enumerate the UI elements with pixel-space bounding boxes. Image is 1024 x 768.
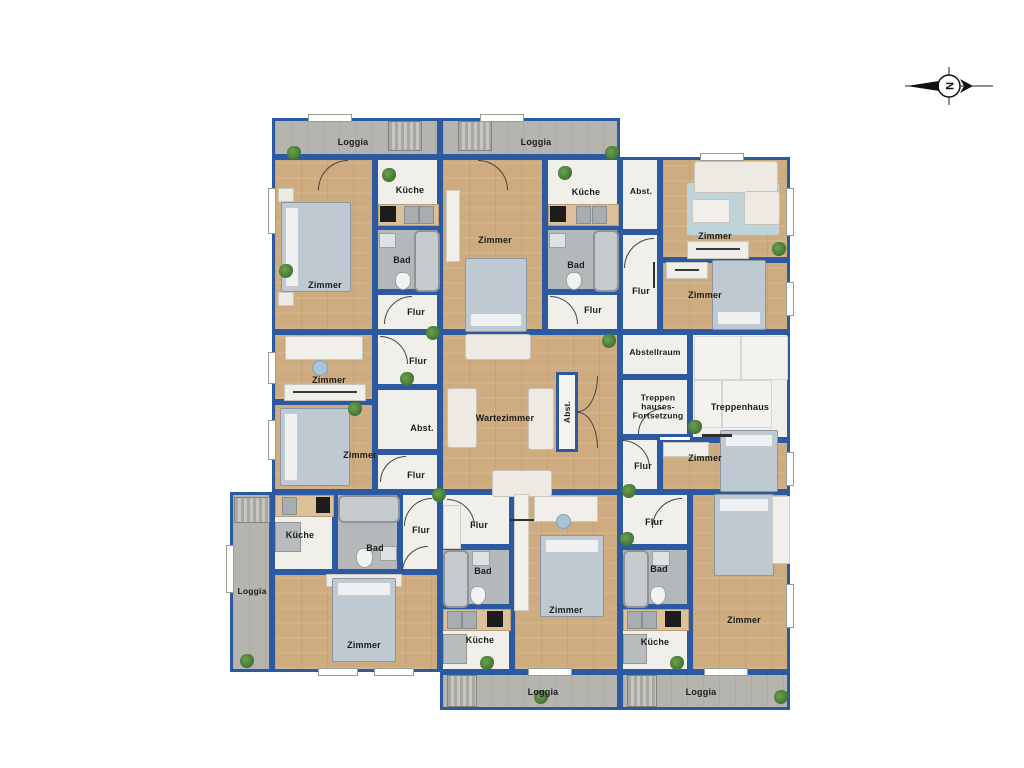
room-zimmer-c2: Zimmer xyxy=(660,260,790,332)
room-label: Zimmer xyxy=(727,615,761,625)
room-label: Zimmer xyxy=(688,453,722,463)
room-flur-mr: Flur xyxy=(620,437,660,492)
room-zimmer-mr: Zimmer xyxy=(660,440,790,492)
room-label: Abstellraum xyxy=(629,347,680,357)
room-label: Bad xyxy=(650,564,668,574)
room-label: Loggia xyxy=(686,687,717,697)
room-flur-a: Flur xyxy=(375,292,440,332)
room-zimmer-c1: Zimmer xyxy=(660,157,790,260)
room-label: Treppen hauses- Fortsetzung xyxy=(633,394,684,421)
room-kueche-e: Küche xyxy=(272,492,335,572)
room-label: Abst. xyxy=(410,423,434,433)
label-line: Fortsetzung xyxy=(633,412,684,421)
room-label: Wartezimmer xyxy=(476,413,534,423)
closet-abst: Abst. xyxy=(556,372,578,452)
compass-north-icon: N xyxy=(903,60,995,112)
compass-letter: N xyxy=(943,82,955,90)
room-label: Treppenhaus xyxy=(711,402,769,412)
room-flur-d1: Flur xyxy=(375,332,440,387)
room-bad-f: Bad xyxy=(440,547,512,607)
room-zimmer-b: Zimmer xyxy=(440,157,545,332)
room-loggia-left: Loggia xyxy=(230,492,272,672)
room-label: Küche xyxy=(396,185,425,195)
room-treppenhaus: Treppenhaus xyxy=(690,332,790,440)
room-kueche-a: Küche xyxy=(375,157,440,227)
room-label: Loggia xyxy=(338,137,369,147)
room-label: Flur xyxy=(407,307,425,317)
room-label: Flur xyxy=(470,520,488,530)
room-label: Loggia xyxy=(521,137,552,147)
room-label: Flur xyxy=(409,356,427,366)
room-label: Flur xyxy=(645,517,663,527)
room-label: Zimmer xyxy=(347,640,381,650)
room-zimmer-g: Zimmer xyxy=(690,492,790,672)
room-label: Abst. xyxy=(630,186,652,196)
room-loggia-f: Loggia xyxy=(440,672,620,710)
room-loggia-top-b: Loggia xyxy=(440,118,620,157)
floor-plan: Loggia Loggia Zimmer Küche Bad Flur Zimm… xyxy=(0,0,1024,768)
room-abst-c: Abst. xyxy=(620,157,660,232)
room-label: Flur xyxy=(407,470,425,480)
room-wartezimmer: Wartezimmer xyxy=(440,332,620,492)
room-flur-d2: Flur xyxy=(375,452,440,492)
room-abstellraum: Abstellraum xyxy=(620,332,690,377)
room-bad-g: Bad xyxy=(620,547,690,607)
room-label: Zimmer xyxy=(478,235,512,245)
room-label: Flur xyxy=(584,305,602,315)
room-label: Zimmer xyxy=(688,290,722,300)
room-loggia-top-a: Loggia xyxy=(272,118,440,157)
room-bad-e: Bad xyxy=(335,492,400,572)
room-flur-f: Flur xyxy=(440,492,512,547)
room-label: Loggia xyxy=(237,586,266,596)
room-treppenhaus-fortsetzung: Treppen hauses- Fortsetzung xyxy=(620,377,690,437)
room-zimmer-e: Zimmer xyxy=(272,572,440,672)
room-label: Zimmer xyxy=(549,605,583,615)
room-label: Flur xyxy=(412,525,430,535)
room-label: Bad xyxy=(366,543,384,553)
room-flur-g: Flur xyxy=(620,492,690,547)
room-abst-d: Abst. xyxy=(375,387,440,452)
room-flur-b: Flur xyxy=(545,292,620,332)
room-zimmer-a: Zimmer xyxy=(272,157,375,332)
room-kueche-g: Küche xyxy=(620,607,690,672)
room-loggia-g: Loggia xyxy=(620,672,790,710)
room-label: Küche xyxy=(572,187,601,197)
room-bad-a: Bad xyxy=(375,227,440,292)
room-label: Zimmer xyxy=(312,375,346,385)
room-label: Abst. xyxy=(562,401,572,423)
room-label: Zimmer xyxy=(698,231,732,241)
room-zimmer-f: Zimmer xyxy=(512,492,620,672)
room-label: Loggia xyxy=(528,687,559,697)
room-label: Küche xyxy=(641,637,670,647)
room-label: Bad xyxy=(474,566,492,576)
room-zimmer-d1: Zimmer xyxy=(272,332,375,402)
room-flur-e: Flur xyxy=(400,492,440,572)
room-label: Flur xyxy=(634,461,652,471)
room-label: Zimmer xyxy=(308,280,342,290)
room-label: Zimmer xyxy=(343,450,377,460)
room-kueche-f: Küche xyxy=(440,607,512,672)
room-label: Küche xyxy=(286,530,315,540)
room-kueche-b: Küche xyxy=(545,157,620,227)
room-label: Küche xyxy=(466,635,495,645)
room-label: Bad xyxy=(393,255,411,265)
room-label: Flur xyxy=(632,286,650,296)
room-bad-b: Bad xyxy=(545,227,620,292)
room-zimmer-d2: Zimmer xyxy=(272,402,375,492)
room-label: Bad xyxy=(567,260,585,270)
room-flur-c: Flur xyxy=(620,232,660,332)
